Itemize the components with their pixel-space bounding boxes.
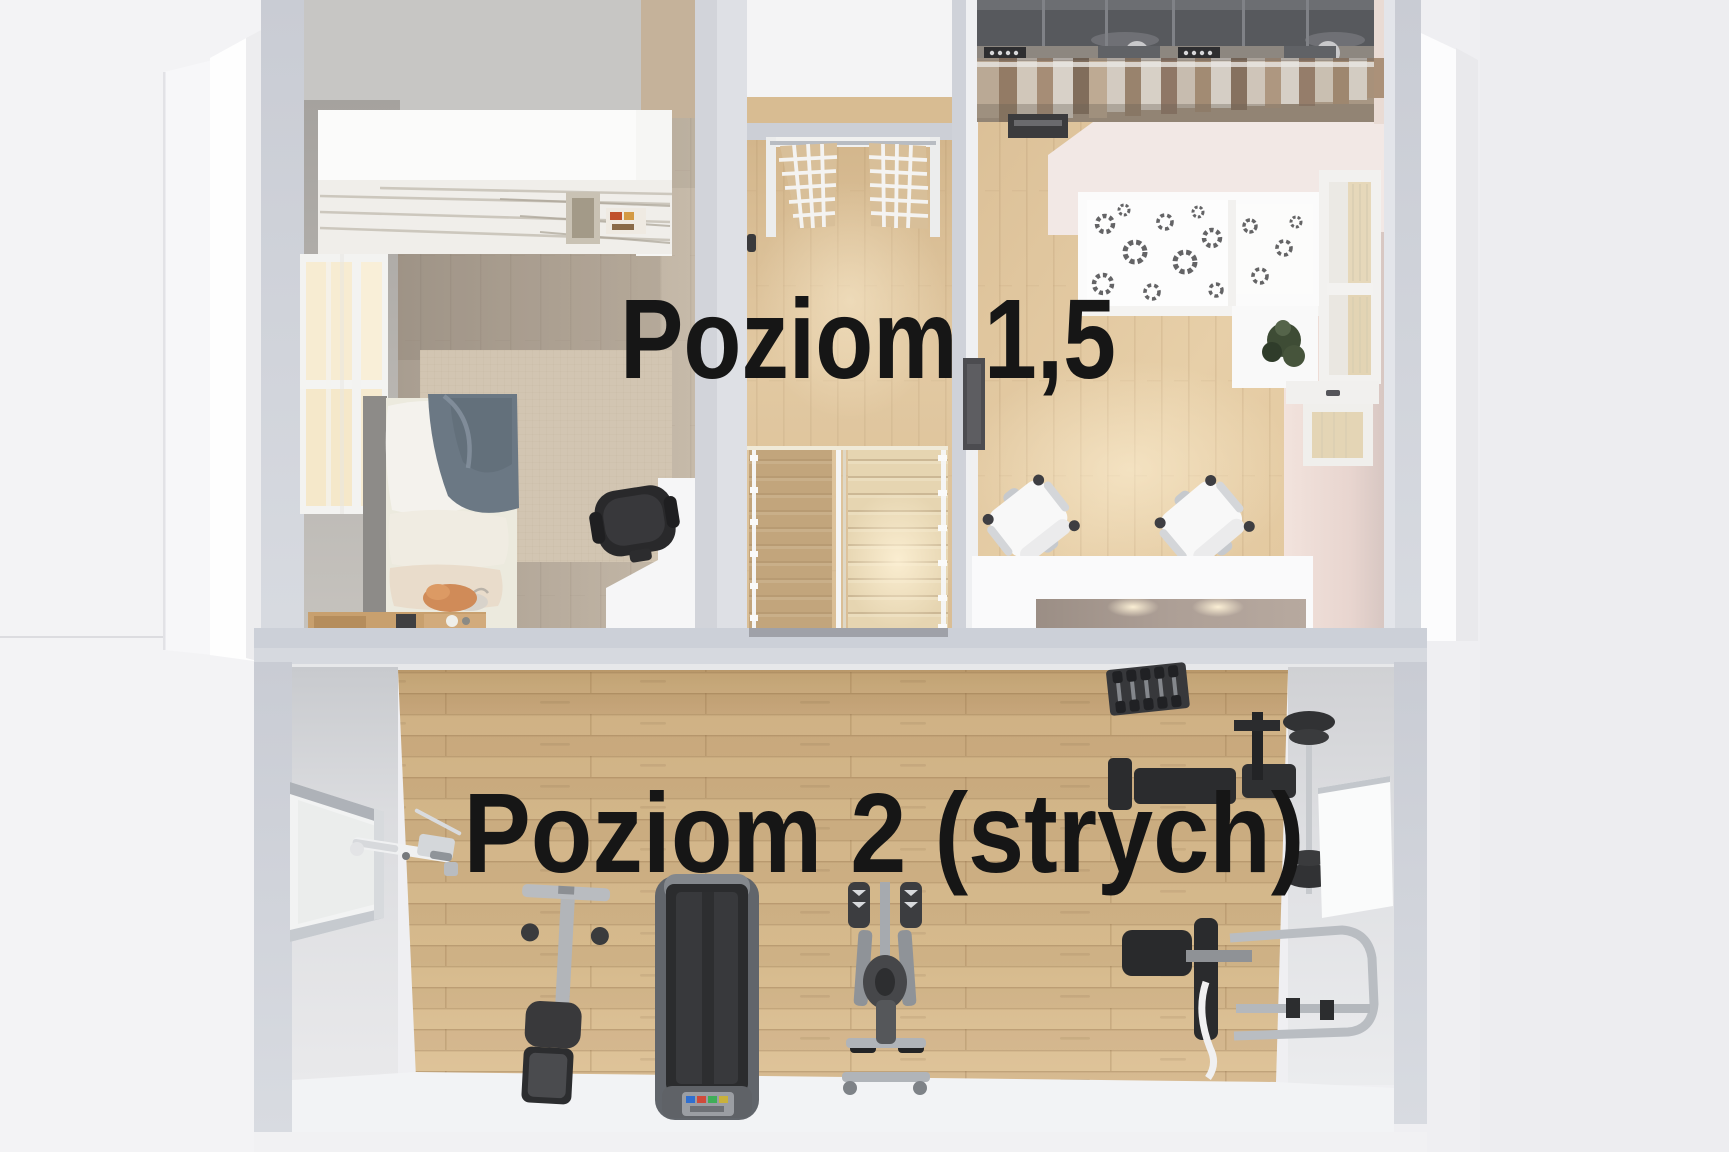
svg-text:Poziom 2 (strych): Poziom 2 (strych)	[464, 770, 1305, 896]
svg-text:Poziom 1,5: Poziom 1,5	[620, 276, 1116, 402]
